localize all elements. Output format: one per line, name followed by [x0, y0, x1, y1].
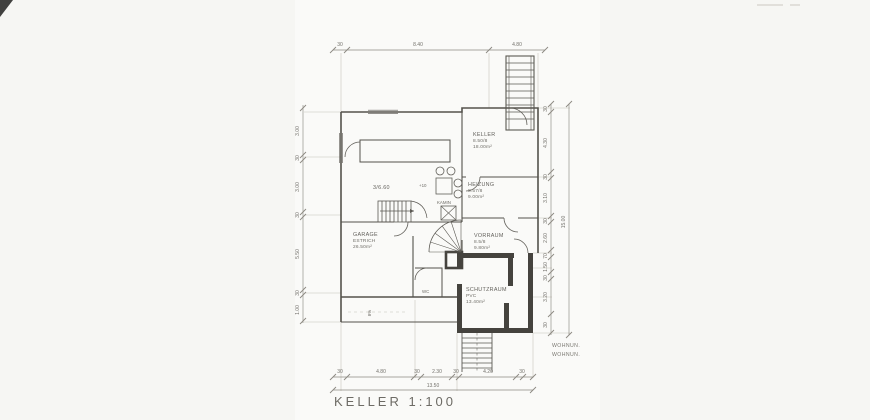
dim-label-total: 13.50	[427, 383, 440, 389]
paper-right-margin	[600, 0, 870, 420]
dim-label: 3.10	[543, 193, 549, 203]
dim-label: 30	[295, 155, 301, 161]
dim-label: 4.80	[376, 369, 386, 375]
dim-label: 30	[295, 290, 301, 296]
blueprint-sheet: 30 8.40 4.80 30 4.80 30 2.30 30 4.20 30 …	[0, 0, 870, 420]
room-label-hobby: 3/6.60	[373, 185, 390, 191]
dim-label: 30	[543, 174, 549, 180]
dim-label: 30	[337, 42, 343, 48]
dim-label: 1.00	[295, 305, 301, 315]
note-line-2: WOHNUN.	[552, 352, 580, 358]
dim-label: 30	[543, 275, 549, 281]
dim-label: 8.40	[413, 42, 423, 48]
dim-label: 30	[543, 218, 549, 224]
dim-label: 30	[453, 369, 459, 375]
svg-text:13.40m²: 13.40m²	[466, 299, 485, 305]
dim-label: 30	[337, 369, 343, 375]
svg-text:9.00m²: 9.00m²	[468, 194, 484, 200]
dim-label: 30	[414, 369, 420, 375]
dim-label: 3.20	[543, 292, 549, 302]
svg-text:8.57/8: 8.57/8	[468, 188, 483, 194]
dim-label: 3.00	[295, 182, 301, 192]
dim-label: 30	[543, 106, 549, 112]
dim-label-total: 15.00	[561, 216, 567, 229]
dim-label: 3.00	[295, 126, 301, 136]
svg-text:9.80m²: 9.80m²	[474, 245, 490, 251]
dim-label: 30	[543, 322, 549, 328]
dim-label: 30	[519, 369, 525, 375]
svg-text:ESTRICH: ESTRICH	[353, 238, 376, 244]
svg-text:KELLER: KELLER	[473, 132, 495, 138]
svg-text:PVC: PVC	[466, 293, 477, 299]
note-line-1: WOHNUN.	[552, 343, 580, 349]
dim-label: 4.30	[543, 138, 549, 148]
svg-text:8.50/8: 8.50/8	[473, 138, 488, 144]
drawing-title: KELLER 1:100	[334, 394, 456, 409]
dim-label: 5.50	[295, 249, 301, 259]
svg-text:26.50m²: 26.50m²	[353, 244, 372, 250]
room-label-kamin: KAMIN	[437, 200, 451, 205]
svg-text:8.5/8: 8.5/8	[474, 239, 486, 245]
floor-plan-drawing: 30 8.40 4.80 30 4.80 30 2.30 30 4.20 30 …	[0, 0, 870, 420]
dim-label: 30	[295, 212, 301, 218]
svg-text:HEIZUNG: HEIZUNG	[468, 182, 494, 188]
paper-background	[0, 0, 870, 420]
svg-text:18.00m²: 18.00m²	[473, 144, 492, 150]
dim-label: 2.30	[432, 369, 442, 375]
dim-label: 4.20	[483, 369, 493, 375]
dim-label: 4.80	[512, 42, 522, 48]
dim-label: 70	[543, 253, 549, 259]
svg-text:GARAGE: GARAGE	[353, 232, 378, 238]
dim-label: 1.50	[543, 262, 549, 272]
svg-text:VORRAUM: VORRAUM	[474, 233, 504, 239]
ramp-slope-label: 8%	[367, 310, 372, 316]
svg-text:SCHUTZRAUM: SCHUTZRAUM	[466, 287, 507, 293]
paper-left-margin	[0, 0, 295, 420]
room-label-wc: WC	[422, 289, 429, 294]
level-mark: +10	[419, 183, 427, 188]
dim-label: 2.60	[543, 233, 549, 243]
